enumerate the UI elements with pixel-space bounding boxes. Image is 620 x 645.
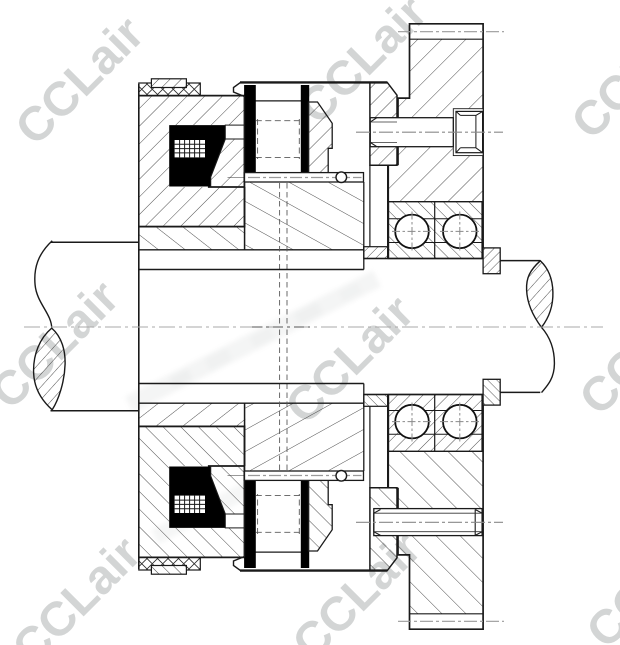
svg-text:CCLair: CCLair (577, 510, 620, 645)
svg-text:CCLair: CCLair (6, 7, 155, 156)
svg-text:CCLair: CCLair (3, 527, 152, 645)
svg-text:CCLair: CCLair (562, 1, 620, 150)
svg-text:CCLair: CCLair (0, 271, 129, 420)
svg-text:CCLair: CCLair (570, 277, 620, 426)
